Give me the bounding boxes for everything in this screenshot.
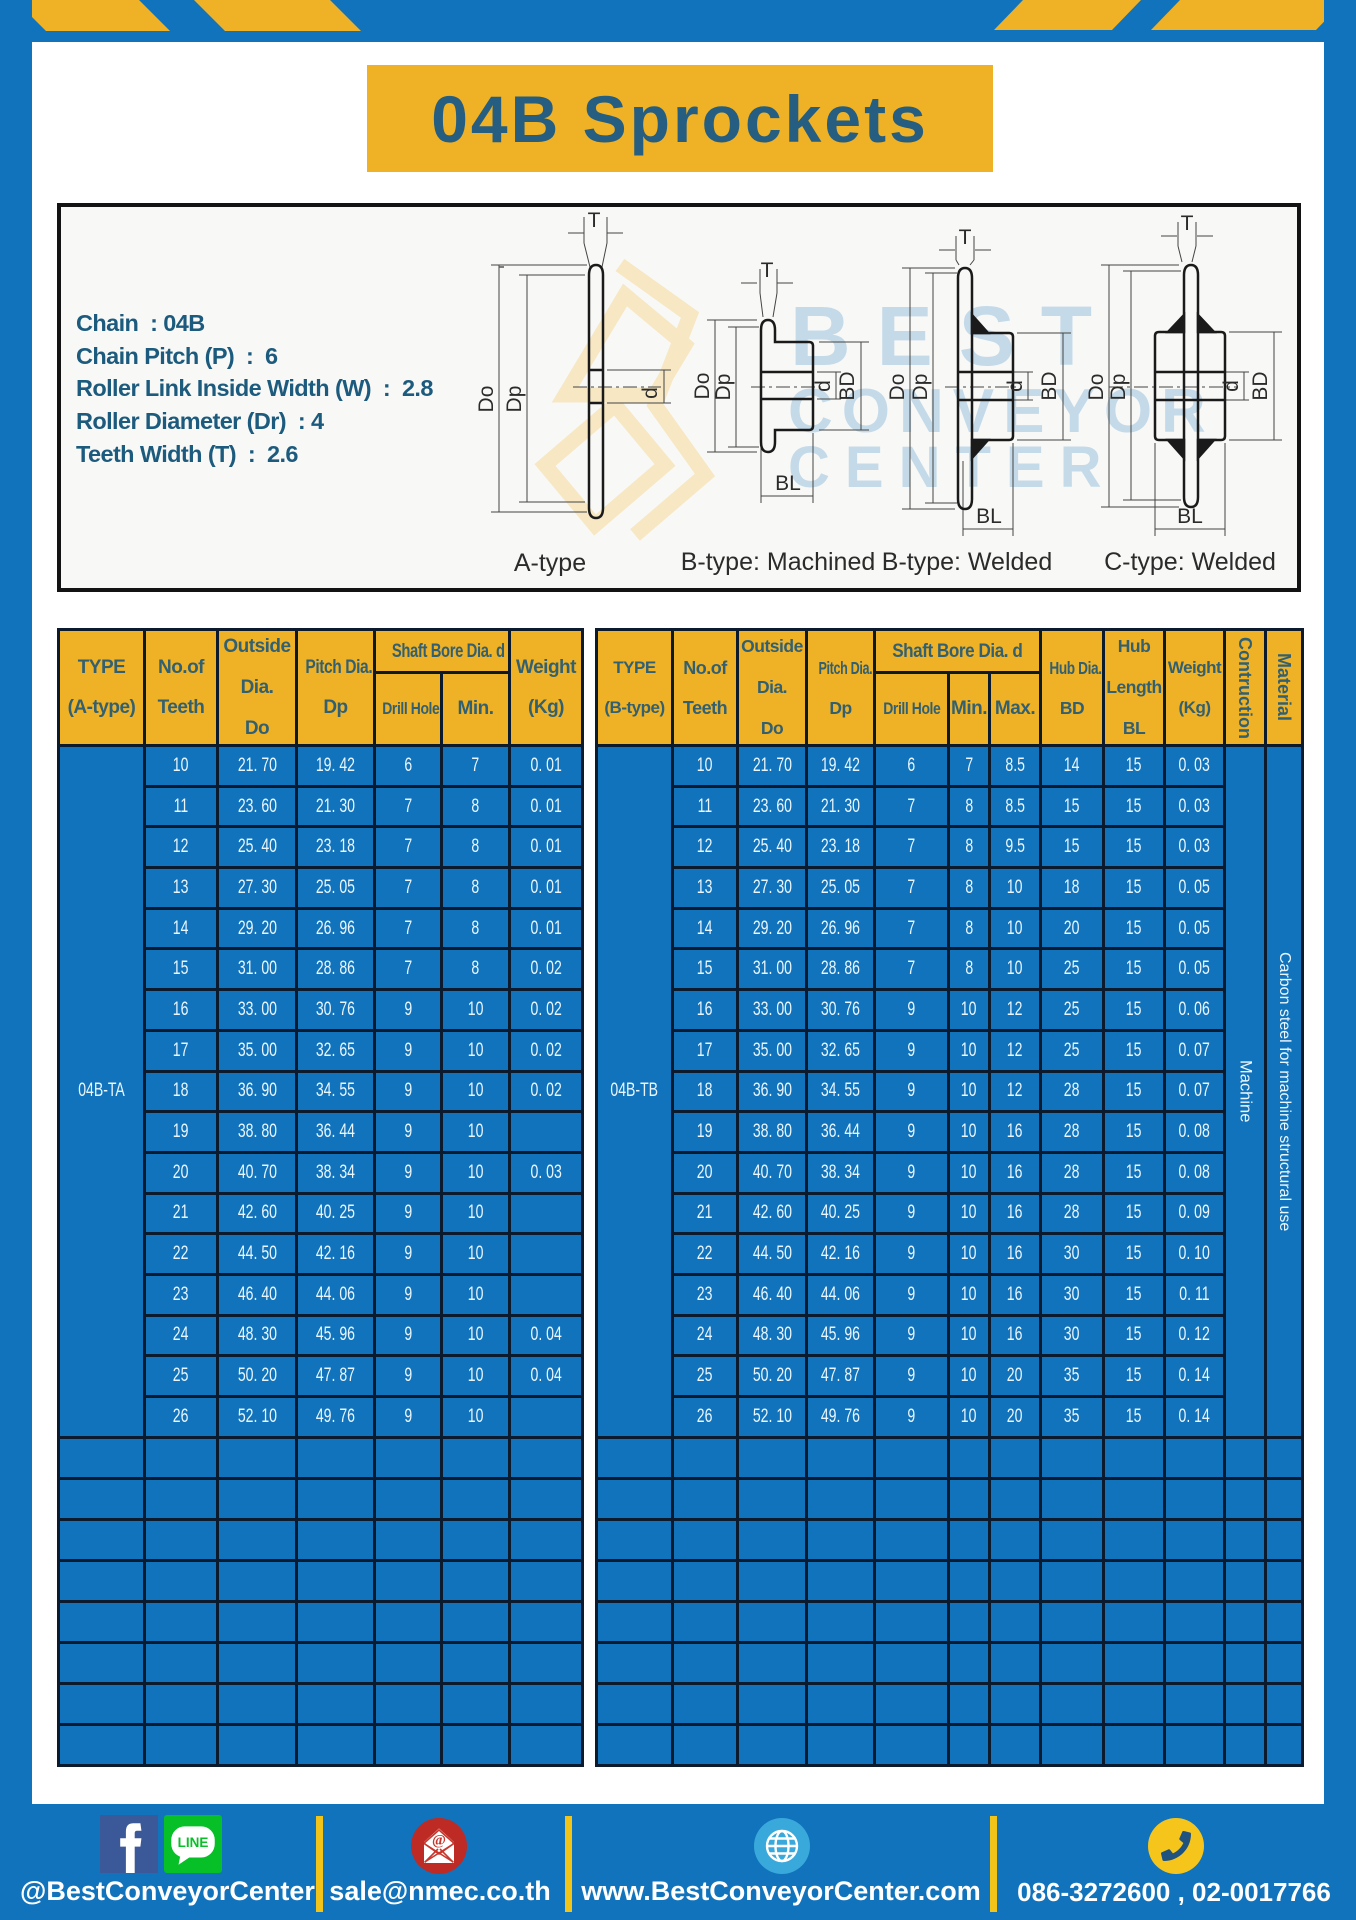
svg-text:Dp: Dp	[909, 374, 932, 401]
svg-text:BL: BL	[775, 472, 801, 495]
svg-text:BD: BD	[1249, 371, 1272, 400]
svg-text:T: T	[1181, 212, 1194, 235]
svg-text:Dp: Dp	[1107, 374, 1130, 401]
svg-text:BL: BL	[976, 505, 1002, 528]
svg-text:B-type: Welded: B-type: Welded	[882, 548, 1052, 576]
svg-text:T: T	[959, 226, 972, 249]
svg-text:Do: Do	[1085, 374, 1108, 401]
svg-text:Do: Do	[691, 373, 714, 400]
svg-text:T: T	[761, 259, 774, 282]
svg-text:@: @	[432, 1833, 446, 1849]
svg-text:C-type: Welded: C-type: Welded	[1104, 548, 1276, 576]
svg-text:LINE: LINE	[178, 1835, 209, 1850]
svg-text:d: d	[812, 380, 835, 392]
svg-text:BL: BL	[1177, 505, 1203, 528]
svg-text:Dp: Dp	[712, 374, 735, 401]
svg-text:T: T	[588, 209, 601, 232]
svg-text:B-type: Machined: B-type: Machined	[681, 548, 876, 576]
svg-text:Do: Do	[886, 374, 909, 401]
svg-text:d: d	[1004, 380, 1027, 392]
svg-text:d: d	[639, 387, 662, 399]
svg-text:BD: BD	[836, 371, 859, 400]
svg-text:d: d	[1220, 380, 1243, 392]
svg-text:A-type: A-type	[514, 549, 586, 577]
svg-text:BD: BD	[1038, 371, 1061, 400]
